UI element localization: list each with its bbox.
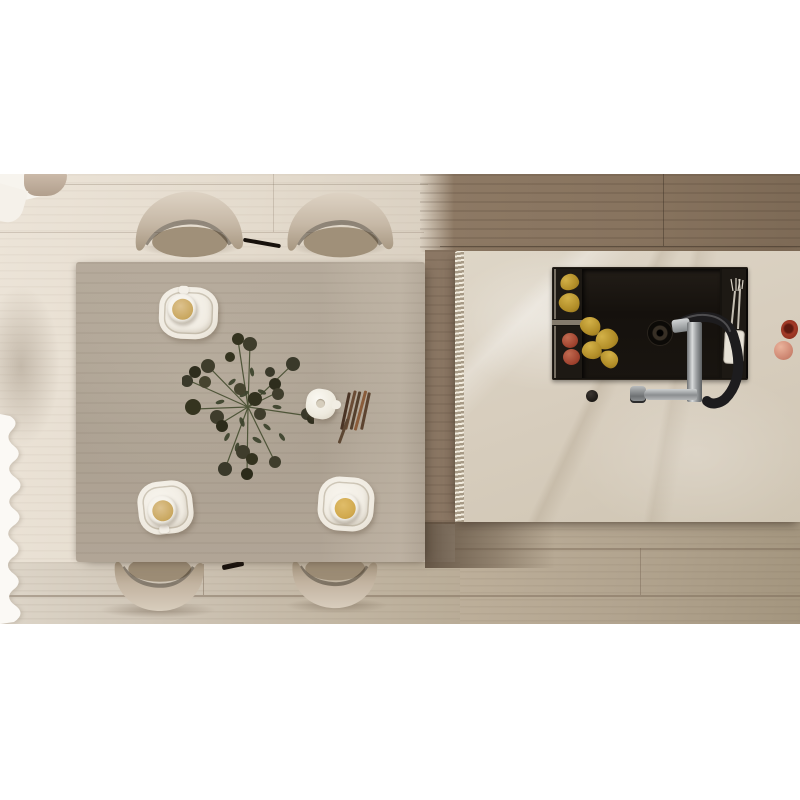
chair-bottom-right [283, 554, 386, 611]
armchair-corner [24, 174, 67, 196]
red-onion [562, 333, 578, 348]
letterbox-bottom [0, 624, 800, 800]
floor-plank-seam [440, 246, 800, 247]
floor-dark-planks-top [420, 174, 800, 252]
island-fluted-edge [455, 251, 464, 522]
red-onion [563, 349, 580, 365]
sink-caddy-bottom [554, 326, 583, 378]
chair-bottom-left [96, 554, 222, 614]
coffee-drink [171, 298, 193, 320]
flower-bouquet [182, 332, 314, 482]
place-setting-bottom-right [316, 475, 376, 533]
chair-top-right [280, 189, 400, 260]
place-setting-top [158, 286, 219, 340]
faucet-spout [644, 389, 697, 400]
pear [558, 272, 580, 292]
sink-caddy-top [554, 269, 583, 319]
cup-handle [159, 525, 170, 534]
coffee-drink [334, 497, 356, 519]
pear [556, 290, 582, 315]
kitchen-photo [0, 174, 800, 624]
floor-plank-joint [273, 174, 274, 232]
sink-divider [552, 320, 582, 325]
floor-shadow-strip [425, 250, 455, 524]
chair-top-left [126, 188, 252, 260]
cup-handle [179, 286, 189, 294]
place-setting-bottom-left [135, 478, 195, 536]
letterbox-top [0, 0, 800, 174]
kitchen-island [455, 251, 800, 522]
teapot-lid-knob [315, 398, 325, 408]
island-floor-shadow [425, 522, 555, 568]
curtain [0, 414, 40, 624]
cut-pomegranate [781, 320, 798, 339]
floor-plank-joint [663, 174, 664, 246]
dried-sticks [342, 390, 370, 440]
soap-dispenser [586, 390, 598, 402]
screenshot-root [0, 0, 800, 800]
apple [774, 341, 793, 360]
kitchen-sink [552, 267, 748, 380]
floor-planks-bottom-left [0, 562, 460, 624]
floor-plank-joint [640, 548, 641, 595]
